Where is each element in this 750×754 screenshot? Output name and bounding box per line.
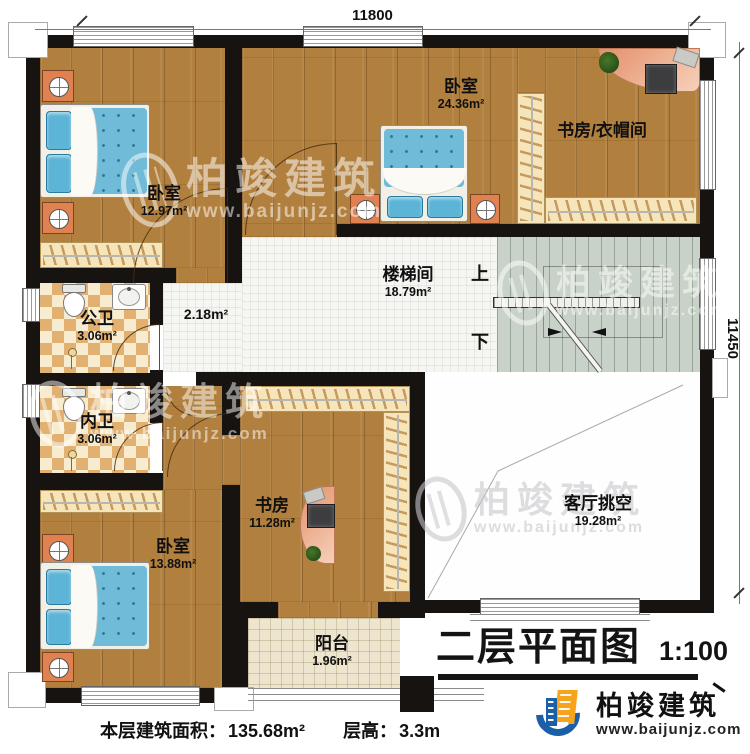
sill-top-left	[8, 22, 48, 58]
lamp-icon	[49, 209, 69, 229]
brand-name: 柏竣建筑	[596, 692, 741, 722]
balcony-railing	[248, 688, 400, 703]
faucet-icon	[127, 287, 131, 291]
bed-bedroom1	[40, 104, 150, 198]
faucet-icon	[127, 391, 131, 395]
title-underline	[438, 674, 698, 680]
label-bedroom2: 卧室 24.36m²	[438, 77, 485, 111]
sill-under-void-window	[470, 614, 650, 624]
nightstand	[42, 70, 74, 102]
brand-logo-icon	[536, 688, 588, 742]
bed-sheet	[383, 168, 466, 195]
plan-title-row: 二层平面图 1:100	[436, 628, 728, 667]
pillow	[387, 196, 423, 218]
hallway-west-floor	[163, 283, 242, 372]
dimension-right: 11450	[724, 318, 741, 359]
label-balcony: 阳台 1.96m²	[312, 634, 352, 668]
stair-handrail	[493, 297, 640, 308]
nightstand	[470, 194, 500, 224]
window-bottom-void	[480, 598, 640, 615]
computer-monitor-icon	[645, 64, 677, 94]
window-left-publicbath	[22, 288, 40, 322]
sink	[112, 388, 146, 414]
label-private-bath: 内卫 3.06m²	[77, 412, 117, 446]
wall-bath-divider	[26, 373, 163, 386]
pillow	[46, 154, 72, 193]
floor-height-value: 3.3m	[399, 721, 440, 741]
sill-bottom-left	[8, 672, 46, 708]
brand-logo: 柏竣建筑 www.baijunjz.com	[536, 688, 741, 742]
dimension-top: 11800	[352, 7, 393, 24]
stair-arrow-left	[548, 328, 562, 336]
label-study-cloak: 书房/衣帽间	[557, 121, 647, 141]
bed-bedroom2	[380, 125, 468, 222]
wall-study-void	[410, 372, 425, 602]
nightstand	[350, 194, 380, 224]
wall-privbath-bedroom3	[26, 473, 163, 490]
lamp-icon	[49, 77, 69, 97]
pillow	[427, 196, 463, 218]
dimension-tick	[76, 15, 87, 26]
brand-building-blue-icon	[546, 698, 557, 726]
lamp-icon	[356, 200, 376, 220]
window-right-cloak	[699, 80, 716, 190]
window-left-privatebath	[22, 384, 40, 418]
bedroom3-closet	[40, 490, 163, 513]
railing-right-of-pillar	[434, 688, 484, 702]
bedroom2-wardrobe	[517, 93, 545, 224]
balcony-pillar	[400, 676, 434, 712]
plant-icon	[306, 546, 321, 561]
floor-height-label: 层高：	[343, 721, 397, 741]
window-right-stairs	[699, 258, 716, 350]
label-public-bath: 公卫 3.06m²	[77, 309, 117, 343]
footer-info: 本层建筑面积：135.68m²层高：3.3m	[100, 717, 442, 743]
floor-drain-icon	[68, 450, 77, 459]
door-leaf	[162, 422, 163, 471]
door-leaf	[227, 190, 228, 283]
door-leaf	[336, 143, 337, 235]
label-hallway-area: 2.18m²	[184, 306, 228, 322]
label-bedroom1: 卧室 12.97m²	[141, 184, 188, 218]
wall-study-balcony-b	[378, 602, 425, 618]
dimension-line-top	[35, 29, 711, 30]
label-stairwell: 楼梯间 18.79m²	[383, 265, 434, 299]
floor-area-value: 135.68m²	[228, 721, 305, 741]
bed-bedroom3	[40, 562, 150, 650]
void-diagonal-lines	[425, 372, 700, 600]
study-top-closet	[245, 386, 410, 412]
brand-url: www.baijunjz.com	[596, 721, 741, 738]
bed-sheet	[71, 107, 98, 196]
plan-title: 二层平面图	[436, 628, 641, 667]
lamp-icon	[49, 541, 69, 561]
bed-sheet	[71, 565, 98, 648]
pillow	[46, 569, 72, 605]
label-living-void: 客厅挑空 19.28m²	[564, 494, 632, 528]
cloakroom-closet	[545, 197, 697, 224]
floor-drain-icon	[68, 348, 77, 357]
hallway-floor	[242, 237, 497, 372]
computer-monitor-icon	[307, 504, 335, 528]
balcony-door-threshold	[278, 602, 378, 618]
wardrobe-passage-floor	[517, 48, 545, 93]
label-study: 书房 11.28m²	[249, 496, 295, 530]
brand-building-orange-icon	[554, 690, 578, 724]
plan-scale: 1:100	[659, 637, 728, 667]
wall-left	[26, 35, 40, 703]
sill-right-mid	[712, 358, 728, 398]
plant-icon	[599, 52, 619, 73]
floor-area-label: 本层建筑面积：	[100, 721, 226, 741]
pillow	[46, 111, 72, 150]
living-void-area	[425, 372, 700, 600]
door-leaf	[159, 324, 160, 371]
stair-arrow-right	[592, 328, 606, 336]
label-stairs-down: 下	[471, 328, 489, 354]
study-right-closet	[383, 412, 410, 592]
pillow	[46, 609, 72, 645]
sink	[112, 284, 146, 310]
label-stairs-up: 上	[471, 260, 489, 286]
lamp-icon	[49, 658, 69, 678]
window-bottom-bedroom3	[81, 686, 200, 706]
label-bedroom3: 卧室 13.88m²	[150, 537, 197, 571]
wall-bedroom2-hall	[337, 224, 700, 237]
nightstand	[42, 652, 74, 682]
nightstand	[42, 202, 74, 234]
lamp-icon	[476, 200, 496, 220]
floor-plan-page: 柏竣建筑 www.baijunjz.com 柏竣建筑 www.baijunjz.…	[0, 0, 750, 754]
